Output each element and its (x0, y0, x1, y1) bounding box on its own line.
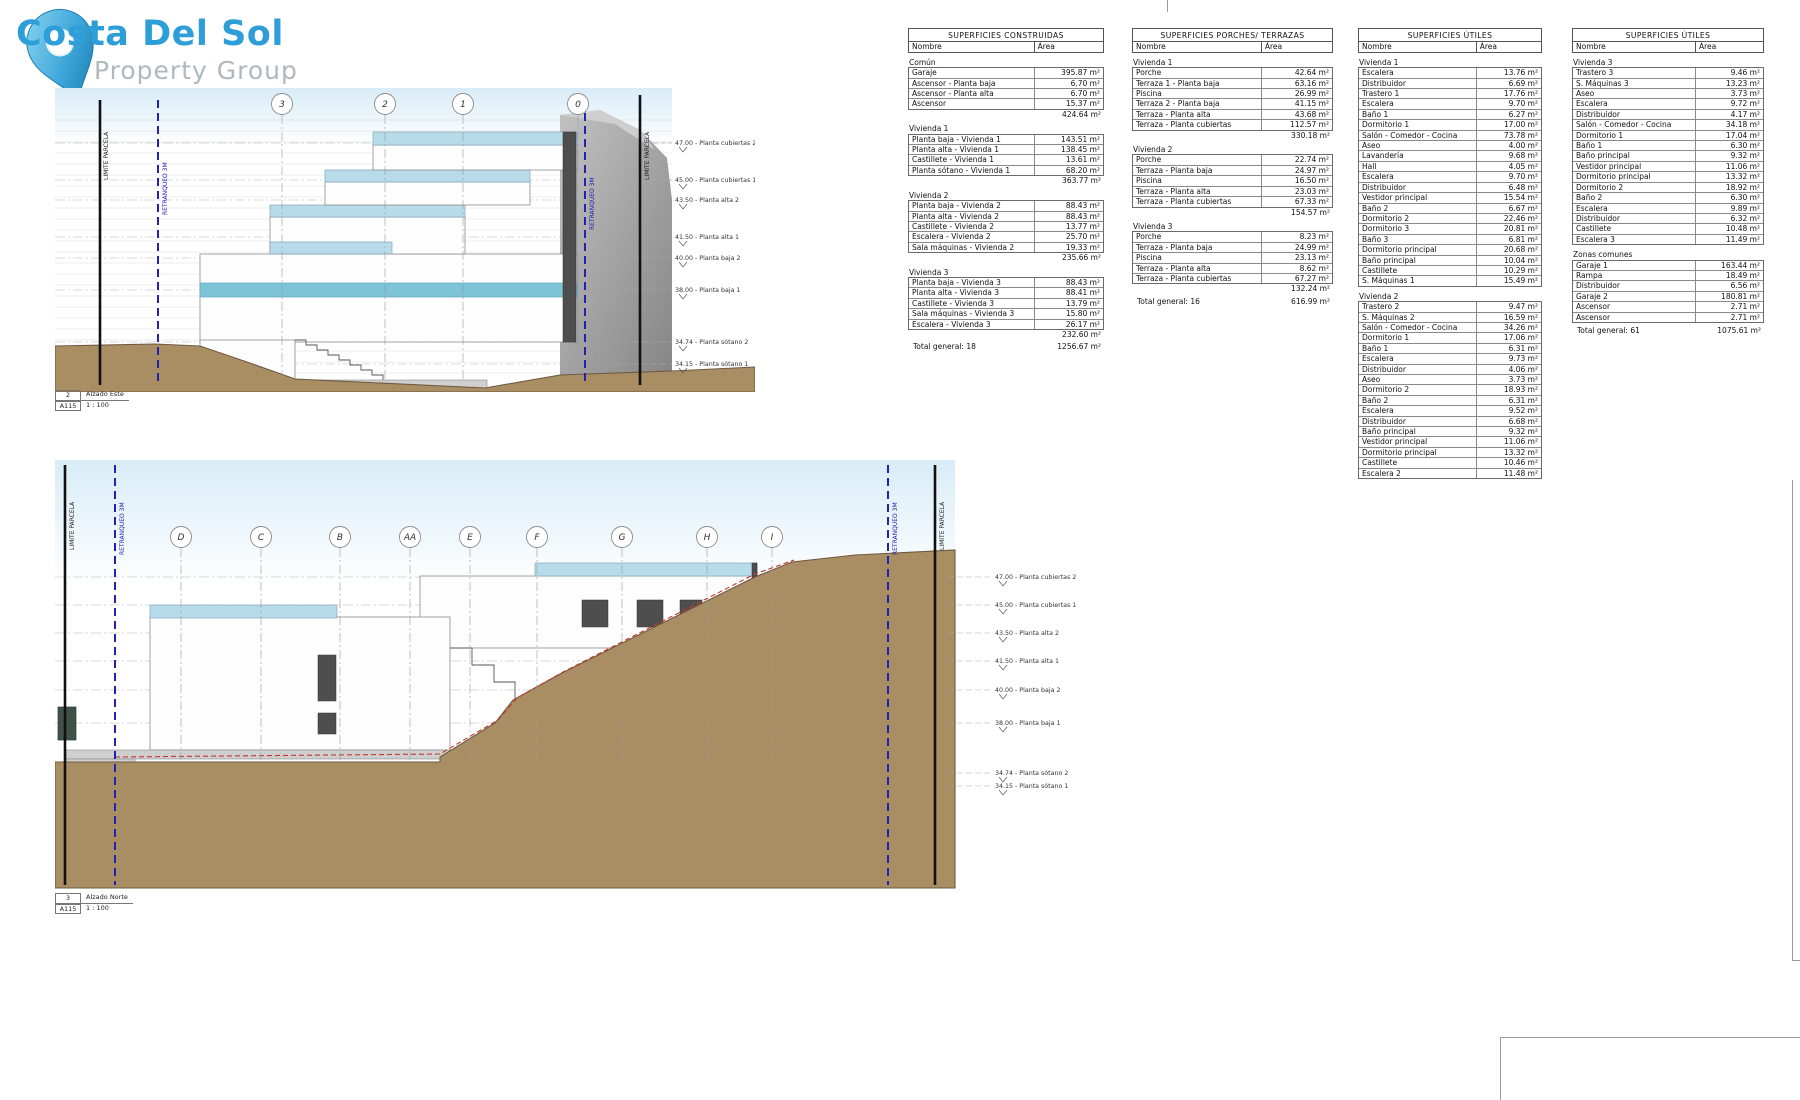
table-row: Porche8.23 m² (1133, 232, 1332, 242)
table-row: Ascensor2.71 m² (1573, 302, 1763, 312)
col-nombre: Nombre (1133, 42, 1262, 51)
room-name: Baño 2 (1359, 204, 1477, 213)
architectural-sheet: { "logo": {"title": "Costa Del Sol", "su… (0, 0, 1800, 1100)
room-area: 3.73 m² (1477, 375, 1541, 384)
room-area: 6.81 m² (1477, 235, 1541, 244)
table-total: Total general: 611075.61 m² (1572, 326, 1764, 335)
drawing-name: Alzado Este (81, 390, 129, 400)
table-row: Distribuidor6.68 m² (1359, 417, 1541, 427)
room-area: 13.77 m² (1035, 222, 1103, 231)
room-name: Castillete - Vivienda 2 (909, 222, 1035, 231)
table-row: Escalera - Vivienda 326.17 m² (909, 320, 1103, 329)
drawing-number: 2 (55, 390, 81, 400)
group-rows: Porche8.23 m²Terraza - Planta baja24.99 … (1132, 231, 1333, 284)
table-row: Dormitorio 320.81 m² (1359, 224, 1541, 234)
table-row: Dormitorio 117.04 m² (1573, 131, 1763, 141)
room-name: Terraza - Planta alta (1133, 187, 1262, 196)
room-area: 15.54 m² (1477, 193, 1541, 202)
retranqueo-label: RETRANQUEO 3M (119, 502, 126, 555)
level-marker-label: 45.00 - Planta cubiertas 1 (675, 177, 755, 184)
room-area: 63.16 m² (1262, 79, 1332, 88)
room-area: 26.17 m² (1035, 320, 1103, 329)
table-title: SUPERFICIES PORCHES/ TERRAZAS (1132, 28, 1333, 42)
level-marker-label: 34.15 - Planta sótano 1 (995, 782, 1068, 790)
room-name: Ascensor (909, 99, 1035, 108)
table-row: Piscina26.99 m² (1133, 89, 1332, 99)
group-name: Vivienda 2 (1132, 145, 1333, 154)
room-name: Garaje (909, 68, 1035, 77)
grid-bubble-label: AA (403, 533, 416, 543)
drawing-number: 3 (55, 893, 81, 903)
room-name: Aseo (1573, 89, 1696, 98)
table-total: Total general: 16616.99 m² (1132, 297, 1333, 306)
lift-shaft (563, 132, 576, 342)
room-area: 24.97 m² (1262, 166, 1332, 175)
room-area: 8.62 m² (1262, 264, 1332, 273)
room-area: 4.05 m² (1477, 162, 1541, 171)
table-row: Dormitorio principal13.32 m² (1573, 172, 1763, 182)
room-area: 15.80 m² (1035, 309, 1103, 318)
table-row: Planta baja - Vivienda 1143.51 m² (909, 135, 1103, 145)
table-row: Distribuidor4.06 m² (1359, 365, 1541, 375)
room-name: Planta alta - Vivienda 2 (909, 212, 1035, 221)
room-name: Dormitorio 1 (1573, 131, 1696, 140)
room-area: 10.48 m² (1696, 224, 1763, 233)
room-name: Escalera (1359, 99, 1477, 108)
drawing-name: Alzado Norte (81, 893, 133, 903)
table-row: Garaje 2180.81 m² (1573, 292, 1763, 302)
room-name: Castillete (1573, 224, 1696, 233)
group-rows: Garaje395.87 m²Ascensor - Planta baja6.7… (908, 67, 1104, 110)
grid-bubble-label: D (178, 533, 185, 543)
room-area: 3.73 m² (1696, 89, 1763, 98)
table-row: S. Máquinas 313.23 m² (1573, 79, 1763, 89)
group-rows: Porche22.74 m²Terraza - Planta baja24.97… (1132, 154, 1333, 207)
table-total: Total general: 181256.67 m² (908, 342, 1104, 351)
room-name: Garaje 2 (1573, 292, 1696, 301)
limite-parcela-label: LIMITE PARCELA (103, 131, 110, 180)
table-row: Planta alta - Vivienda 1138.45 m² (909, 145, 1103, 155)
table-row: Dormitorio 117.00 m² (1359, 120, 1541, 130)
room-area: 23.13 m² (1262, 253, 1332, 262)
room-name: Planta sótano - Vivienda 1 (909, 166, 1035, 175)
grid-bubble-label: 0 (575, 100, 581, 110)
col-area: Área (1477, 42, 1541, 51)
room-name: Castillete (1359, 458, 1477, 467)
table-row: Escalera9.70 m² (1359, 172, 1541, 182)
table-header-row: NombreÁrea (1572, 42, 1764, 52)
table-row: Aseo4.00 m² (1359, 141, 1541, 151)
room-name: Escalera (1359, 354, 1477, 363)
limite-parcela-label: LIMITE PARCELA (69, 501, 76, 550)
level-marker-label: 38.00 - Planta baja 1 (995, 720, 1061, 727)
room-name: Dormitorio principal (1573, 172, 1696, 181)
room-name: Aseo (1359, 141, 1477, 150)
sheet-number: A115 (55, 904, 81, 915)
table-row: Castillete10.48 m² (1573, 224, 1763, 234)
room-name: Terraza - Planta alta (1133, 264, 1262, 273)
table-row: Planta alta - Vivienda 388.41 m² (909, 288, 1103, 298)
table-title: SUPERFICIES ÚTILES (1358, 28, 1542, 42)
room-name: Escalera 3 (1573, 235, 1696, 244)
room-area: 9.32 m² (1477, 427, 1541, 436)
table-row: Salón - Comedor - Cocina73.78 m² (1359, 131, 1541, 141)
room-area: 22.74 m² (1262, 155, 1332, 164)
room-name: Terraza - Planta baja (1133, 243, 1262, 252)
table-row: Dormitorio 222.46 m² (1359, 214, 1541, 224)
room-area: 6.56 m² (1696, 281, 1763, 290)
table-row: Salón - Comedor - Cocina34.18 m² (1573, 120, 1763, 130)
room-name: Terraza 2 - Planta baja (1133, 99, 1262, 108)
group-rows: Trastero 39.46 m²S. Máquinas 313.23 m²As… (1572, 67, 1764, 245)
sheet-frame-line (1167, 0, 1168, 12)
room-name: Trastero 2 (1359, 302, 1477, 311)
room-name: S. Máquinas 3 (1573, 79, 1696, 88)
room-name: Ascensor - Planta alta (909, 89, 1035, 98)
room-area: 73.78 m² (1477, 131, 1541, 140)
col-nombre: Nombre (1359, 42, 1477, 51)
room-area: 9.70 m² (1477, 172, 1541, 181)
total-value: 1256.67 m² (1035, 342, 1104, 351)
group-rows: Trastero 29.47 m²S. Máquinas 216.59 m²Sa… (1358, 301, 1542, 479)
room-name: Sala máquinas - Vivienda 3 (909, 309, 1035, 318)
level-marker-label: 34.74 - Planta sótano 2 (675, 338, 748, 346)
total-label: Total general: 16 (1132, 297, 1263, 306)
table-row: Ascensor15.37 m² (909, 99, 1103, 108)
room-name: Baño 1 (1573, 141, 1696, 150)
room-name: Dormitorio 2 (1359, 214, 1477, 223)
table-row: Baño principal9.32 m² (1359, 427, 1541, 437)
table-row: Baño 16.31 m² (1359, 344, 1541, 354)
retranqueo-label: RETRANQUEO 3M (162, 162, 169, 215)
col-nombre: Nombre (1573, 42, 1696, 51)
room-name: Lavandería (1359, 151, 1477, 160)
window (582, 600, 608, 627)
room-area: 11.48 m² (1477, 469, 1541, 478)
room-area: 23.03 m² (1262, 187, 1332, 196)
table-row: Trastero 29.47 m² (1359, 302, 1541, 312)
table-row: Escalera9.72 m² (1573, 99, 1763, 109)
table-row: Piscina23.13 m² (1133, 253, 1332, 263)
room-area: 24.99 m² (1262, 243, 1332, 252)
room-name: Terraza - Planta cubiertas (1133, 274, 1262, 283)
table-row: Terraza 1 - Planta baja63.16 m² (1133, 79, 1332, 89)
room-name: Terraza 1 - Planta baja (1133, 79, 1262, 88)
room-area: 20.81 m² (1477, 224, 1541, 233)
logo-title: Costa Del Sol (16, 14, 284, 54)
group-subtotal: 363.77 m² (908, 176, 1104, 185)
room-name: Ascensor - Planta baja (909, 79, 1035, 88)
room-name: S. Máquinas 2 (1359, 313, 1477, 322)
table-row: Dormitorio 218.92 m² (1573, 183, 1763, 193)
table-row: Porche22.74 m² (1133, 155, 1332, 165)
room-name: Escalera - Vivienda 3 (909, 320, 1035, 329)
table-row: Porche42.64 m² (1133, 68, 1332, 78)
sheet-frame-line (1500, 1037, 1800, 1038)
room-name: Vestidor principal (1359, 193, 1477, 202)
room-area: 9.89 m² (1696, 204, 1763, 213)
room-name: Dormitorio 3 (1359, 224, 1477, 233)
level-marker-label: 41.50 - Planta alta 1 (675, 234, 739, 241)
area-table: SUPERFICIES CONSTRUIDASNombreÁreaComúnGa… (908, 28, 1104, 352)
room-area: 9.70 m² (1477, 99, 1541, 108)
level-marker-label: 43.50 - Planta alta 2 (995, 630, 1059, 637)
group-rows: Planta baja - Vivienda 388.43 m²Planta a… (908, 277, 1104, 330)
room-area: 10.46 m² (1477, 458, 1541, 467)
window (318, 655, 336, 701)
room-area: 13.76 m² (1477, 68, 1541, 77)
table-row: Baño 36.81 m² (1359, 235, 1541, 245)
group-name: Vivienda 3 (1572, 58, 1764, 67)
room-area: 22.46 m² (1477, 214, 1541, 223)
group-name: Vivienda 3 (908, 268, 1104, 277)
table-row: Baño 16.27 m² (1359, 110, 1541, 120)
room-area: 34.26 m² (1477, 323, 1541, 332)
room-name: Ascensor (1573, 313, 1696, 322)
table-row: Castillete10.29 m² (1359, 266, 1541, 276)
col-area: Área (1035, 42, 1103, 51)
room-area: 6.69 m² (1477, 79, 1541, 88)
total-label: Total general: 61 (1572, 326, 1697, 335)
room-area: 68.20 m² (1035, 166, 1103, 175)
room-name: Aseo (1359, 375, 1477, 384)
col-area: Área (1696, 42, 1763, 51)
room-area: 4.17 m² (1696, 110, 1763, 119)
room-area: 19.33 m² (1035, 243, 1103, 252)
table-row: Terraza - Planta cubiertas67.27 m² (1133, 274, 1332, 283)
table-row: Sala máquinas - Vivienda 315.80 m² (909, 309, 1103, 319)
room-area: 88.43 m² (1035, 278, 1103, 287)
level-marker-label: 34.15 - Planta sótano 1 (675, 360, 748, 368)
table-title: SUPERFICIES CONSTRUIDAS (908, 28, 1104, 42)
drawing-scale: 1 : 100 (81, 401, 114, 412)
sheet-number: A115 (55, 401, 81, 412)
table-row: Escalera9.52 m² (1359, 406, 1541, 416)
table-row: Dormitorio principal13.32 m² (1359, 448, 1541, 458)
window (318, 713, 336, 734)
room-area: 16.50 m² (1262, 176, 1332, 185)
room-name: Distribuidor (1573, 110, 1696, 119)
room-area: 9.46 m² (1696, 68, 1763, 77)
room-name: Planta alta - Vivienda 1 (909, 145, 1035, 154)
room-name: Distribuidor (1359, 417, 1477, 426)
room-name: Terraza - Planta cubiertas (1133, 120, 1262, 129)
table-row: Terraza 2 - Planta baja41.15 m² (1133, 99, 1332, 109)
group-subtotal: 235.66 m² (908, 253, 1104, 262)
table-row: Escalera9.89 m² (1573, 204, 1763, 214)
room-name: Terraza - Planta alta (1133, 110, 1262, 119)
table-row: Baño principal9.32 m² (1573, 151, 1763, 161)
stepped-profile (450, 648, 515, 700)
room-name: Terraza - Planta cubiertas (1133, 197, 1262, 206)
table-row: Trastero 117.76 m² (1359, 89, 1541, 99)
table-row: Terraza - Planta baja24.97 m² (1133, 166, 1332, 176)
table-row: Aseo3.73 m² (1573, 89, 1763, 99)
room-name: Escalera 2 (1359, 469, 1477, 478)
room-area: 13.79 m² (1035, 299, 1103, 308)
room-name: Planta baja - Vivienda 1 (909, 135, 1035, 144)
room-name: Vestidor principal (1359, 437, 1477, 446)
group-name: Común (908, 58, 1104, 67)
room-name: Baño principal (1359, 256, 1477, 265)
room-name: Salón - Comedor - Cocina (1359, 131, 1477, 140)
room-name: Dormitorio 2 (1573, 183, 1696, 192)
area-table: SUPERFICIES PORCHES/ TERRAZASNombreÁreaV… (1132, 28, 1333, 306)
table-row: Escalera 311.49 m² (1573, 235, 1763, 244)
room-area: 20.68 m² (1477, 245, 1541, 254)
limite-parcela-label: LIMITE PARCELA (644, 131, 651, 180)
table-row: Terraza - Planta alta43.68 m² (1133, 110, 1332, 120)
room-area: 15.49 m² (1477, 276, 1541, 285)
pool-band (200, 283, 577, 297)
room-area: 6.67 m² (1477, 204, 1541, 213)
room-area: 42.64 m² (1262, 68, 1332, 77)
total-label: Total general: 18 (908, 342, 1035, 351)
room-area: 11.06 m² (1477, 437, 1541, 446)
table-row: Castillete10.46 m² (1359, 458, 1541, 468)
room-name: Escalera (1359, 406, 1477, 415)
table-row: Ascensor - Planta alta6.70 m² (909, 89, 1103, 99)
table-row: Baño 26.30 m² (1573, 193, 1763, 203)
group-name: Vivienda 3 (1132, 222, 1333, 231)
room-area: 18.93 m² (1477, 385, 1541, 394)
room-area: 9.32 m² (1696, 151, 1763, 160)
table-row: Planta alta - Vivienda 288.43 m² (909, 212, 1103, 222)
total-value: 616.99 m² (1263, 297, 1333, 306)
table-row: Escalera9.73 m² (1359, 354, 1541, 364)
room-name: Castillete (1359, 266, 1477, 275)
table-row: Baño 26.67 m² (1359, 204, 1541, 214)
table-row: Ascensor2.71 m² (1573, 313, 1763, 322)
room-area: 88.41 m² (1035, 288, 1103, 297)
room-area: 9.47 m² (1477, 302, 1541, 311)
room-name: Escalera (1573, 99, 1696, 108)
room-name: S. Máquinas 1 (1359, 276, 1477, 285)
retranqueo-label: RETRANQUEO 3M (892, 502, 899, 555)
room-name: Escalera (1573, 204, 1696, 213)
room-name: Distribuidor (1359, 365, 1477, 374)
table-row: Planta baja - Vivienda 388.43 m² (909, 278, 1103, 288)
table-row: Escalera 211.48 m² (1359, 469, 1541, 478)
room-area: 13.32 m² (1696, 172, 1763, 181)
room-area: 4.00 m² (1477, 141, 1541, 150)
level-marker-label: 45.00 - Planta cubiertas 1 (995, 602, 1076, 609)
room-name: Vestidor principal (1573, 162, 1696, 171)
room-name: Distribuidor (1573, 214, 1696, 223)
table-row: Escalera9.70 m² (1359, 99, 1541, 109)
room-area: 13.61 m² (1035, 155, 1103, 164)
room-name: Salón - Comedor - Cocina (1359, 323, 1477, 332)
table-row: Planta sótano - Vivienda 168.20 m² (909, 166, 1103, 175)
table-header-row: NombreÁrea (1132, 42, 1333, 52)
table-row: Dormitorio 218.93 m² (1359, 385, 1541, 395)
room-area: 2.71 m² (1696, 302, 1763, 311)
sheet-frame-line (1792, 960, 1800, 961)
room-name: Salón - Comedor - Cocina (1573, 120, 1696, 129)
room-name: Ascensor (1573, 302, 1696, 311)
table-row: Terraza - Planta cubiertas112.57 m² (1133, 120, 1332, 129)
level-marker-label: 41.50 - Planta alta 1 (995, 658, 1059, 665)
building-elevation (200, 132, 577, 389)
sheet-frame-line (1500, 1037, 1501, 1100)
room-area: 67.27 m² (1262, 274, 1332, 283)
table-row: Planta baja - Vivienda 288.43 m² (909, 201, 1103, 211)
limite-parcela-label: LIMITE PARCELA (939, 501, 946, 550)
table-row: Dormitorio principal20.68 m² (1359, 245, 1541, 255)
level-marker-label: 34.74 - Planta sótano 2 (995, 769, 1068, 777)
level-marker-label: 47.00 - Planta cubiertas 2 (675, 140, 755, 147)
level-marker-label: 47.00 - Planta cubiertas 2 (995, 574, 1076, 581)
room-area: 18.92 m² (1696, 183, 1763, 192)
room-area: 9.52 m² (1477, 406, 1541, 415)
room-name: Dormitorio 1 (1359, 120, 1477, 129)
entry-panel (58, 707, 76, 740)
room-name: Planta baja - Vivienda 3 (909, 278, 1035, 287)
room-name: Piscina (1133, 89, 1262, 98)
grid-bubble-label: 1 (460, 100, 466, 110)
table-row: Distribuidor6.32 m² (1573, 214, 1763, 224)
room-name: Escalera - Vivienda 2 (909, 232, 1035, 241)
table-row: Hall4.05 m² (1359, 162, 1541, 172)
room-name: Piscina (1133, 253, 1262, 262)
room-area: 25.70 m² (1035, 232, 1103, 241)
glass-roof (373, 132, 577, 145)
grid-bubble-label: B (337, 533, 343, 543)
group-name: Vivienda 1 (1358, 58, 1542, 67)
group-subtotal: 154.57 m² (1132, 208, 1333, 217)
table-row: Vestidor principal11.06 m² (1573, 162, 1763, 172)
room-name: Hall (1359, 162, 1477, 171)
col-area: Área (1262, 42, 1332, 51)
room-area: 163.44 m² (1696, 261, 1763, 270)
table-row: Piscina16.50 m² (1133, 176, 1332, 186)
room-name: Piscina (1133, 176, 1262, 185)
room-area: 88.43 m² (1035, 201, 1103, 210)
room-name: Distribuidor (1359, 79, 1477, 88)
room-name: Terraza - Planta baja (1133, 166, 1262, 175)
table-row: S. Máquinas 115.49 m² (1359, 276, 1541, 285)
group-subtotal: 232.60 m² (908, 330, 1104, 339)
group-subtotal: 330.18 m² (1132, 131, 1333, 140)
room-area: 18.49 m² (1696, 271, 1763, 280)
exterior-stairs (295, 340, 383, 380)
group-rows: Garaje 1163.44 m²Rampa18.49 m²Distribuid… (1572, 260, 1764, 323)
table-row: Ascensor - Planta baja6.70 m² (909, 79, 1103, 89)
alzado-norte-drawing: LIMITE PARCELA RETRANQUEO 3M RETRANQUEO … (55, 460, 1095, 890)
room-name: Planta baja - Vivienda 2 (909, 201, 1035, 210)
group-subtotal: 424.64 m² (908, 110, 1104, 119)
room-name: Sala máquinas - Vivienda 2 (909, 243, 1035, 252)
room-area: 17.76 m² (1477, 89, 1541, 98)
table-row: S. Máquinas 216.59 m² (1359, 313, 1541, 323)
grid-bubble-label: F (534, 533, 540, 543)
group-rows: Porche42.64 m²Terraza 1 - Planta baja63.… (1132, 67, 1333, 130)
group-rows: Planta baja - Vivienda 1143.51 m²Planta … (908, 134, 1104, 177)
area-table: SUPERFICIES ÚTILESNombreÁreaVivienda 1Es… (1358, 28, 1542, 479)
group-name: Zonas comunes (1572, 250, 1764, 259)
table-row: Rampa18.49 m² (1573, 271, 1763, 281)
table-row: Salón - Comedor - Cocina34.26 m² (1359, 323, 1541, 333)
room-area: 180.81 m² (1696, 292, 1763, 301)
room-area: 17.04 m² (1696, 131, 1763, 140)
table-row: Terraza - Planta alta8.62 m² (1133, 264, 1332, 274)
room-area: 67.33 m² (1262, 197, 1332, 206)
level-marker-label: 38.00 - Planta baja 1 (675, 287, 741, 294)
table-row: Vestidor principal11.06 m² (1359, 437, 1541, 447)
room-area: 6.70 m² (1035, 79, 1103, 88)
table-row: Aseo3.73 m² (1359, 375, 1541, 385)
grid-bubble-label: G (619, 533, 626, 543)
